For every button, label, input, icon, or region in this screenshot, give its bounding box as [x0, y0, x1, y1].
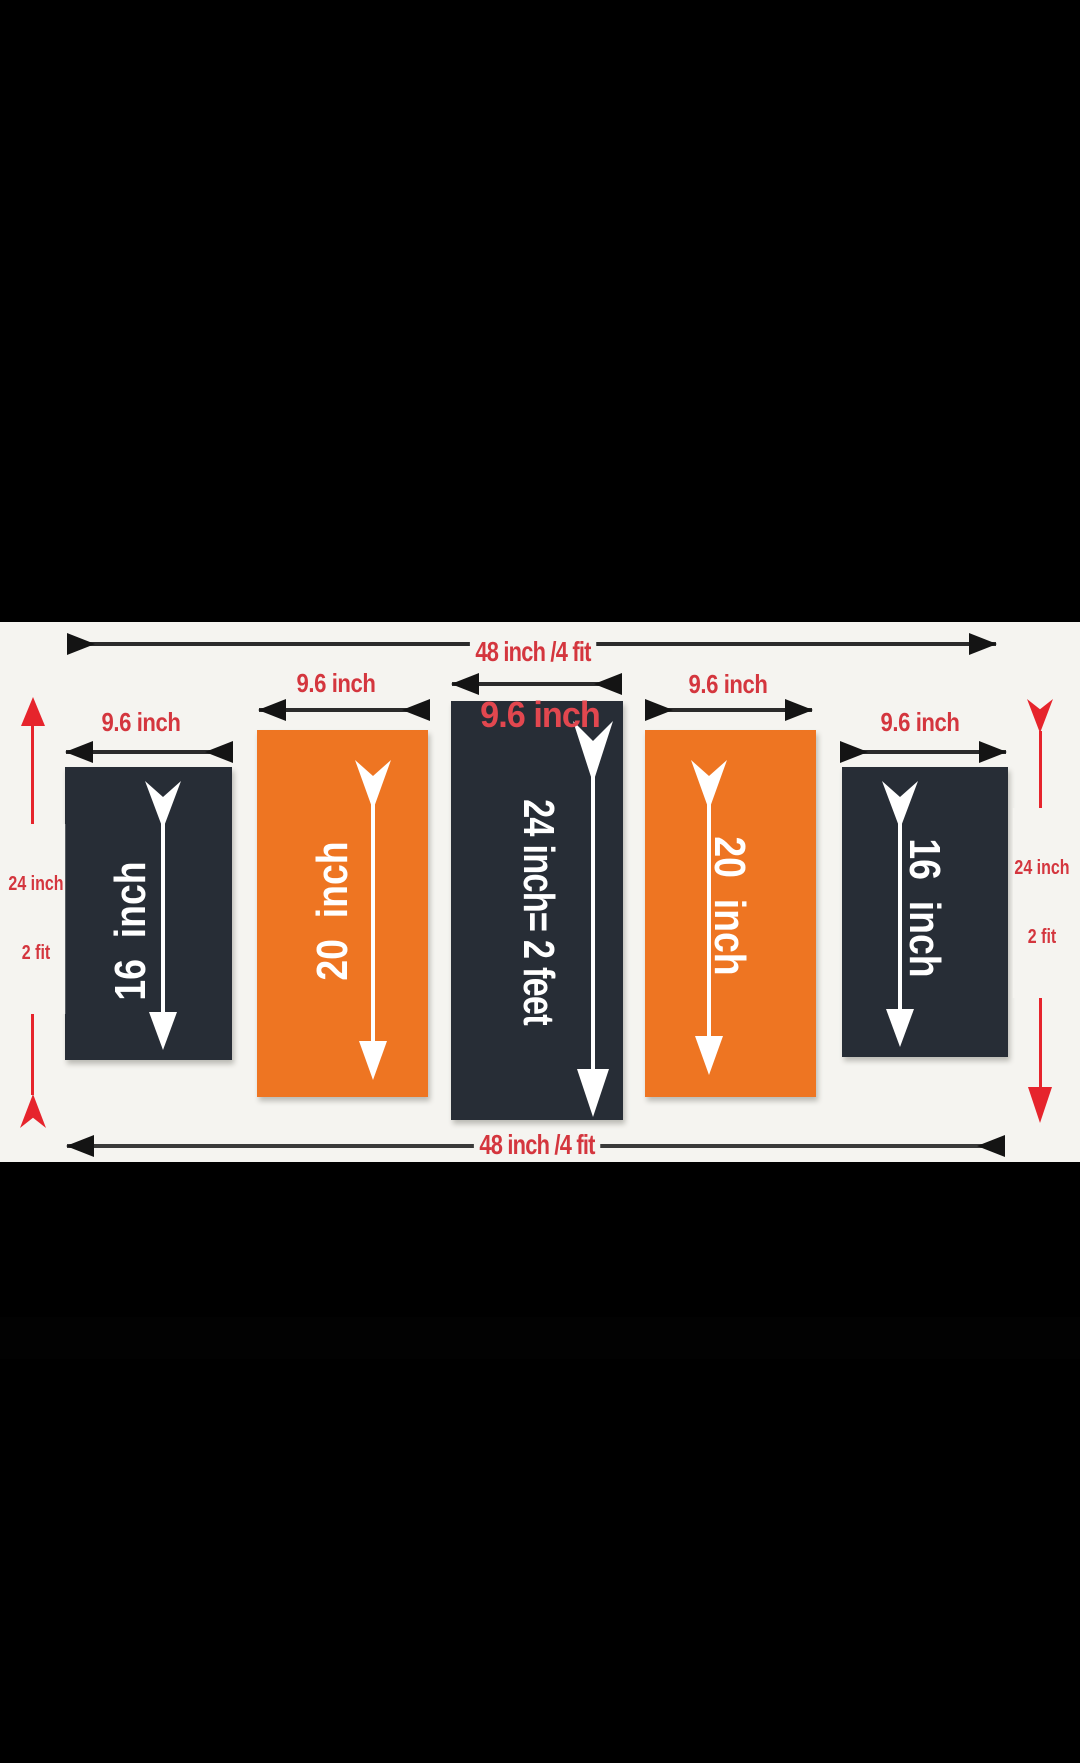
background-shade-strip [0, 1317, 1080, 1359]
panel-2-width-arrow [258, 699, 430, 721]
panel-5-height-label: 16 inch [902, 838, 946, 977]
panel-1-width-arrow [65, 741, 233, 763]
panel-2-height-label: 20 inch [311, 841, 355, 980]
left-height-label: 24 inch 2 fit [7, 824, 65, 1014]
arrowhead-left-icon [205, 741, 233, 763]
arrowhead-left-icon [258, 699, 286, 721]
red-arrowhead-down-icon [1028, 1087, 1052, 1123]
panel-1: 16 inch [65, 767, 232, 1060]
letterbox-bottom [0, 1162, 1080, 1763]
arrowhead-right-icon [645, 699, 673, 721]
panel-3: 24 inch= 2 feet [451, 701, 623, 1120]
panel-3-height-label: 24 inch= 2 feet [516, 799, 560, 1025]
right-height-label: 24 inch 2 fit [1013, 808, 1071, 998]
screenshot-root: 48 inch /4 fit 48 inch /4 fit 9.6 inch 9… [0, 0, 1080, 1763]
panel-5-width-arrow [840, 741, 1007, 763]
arrowhead-left-icon [66, 1135, 94, 1157]
center-width-overlay-label: 9.6 inch [480, 697, 600, 733]
red-arrowhead-up-icon [21, 697, 45, 726]
arrowhead-left-icon [402, 699, 430, 721]
panel-2-width-label: 9.6 inch [291, 668, 382, 698]
left-height-label-line2: 2 fit [8, 942, 63, 965]
panel-1-width-label: 9.6 inch [96, 707, 187, 737]
panel-2: 20 inch [257, 730, 428, 1097]
arrowhead-left-icon [977, 1135, 1005, 1157]
arrowhead-left-icon [594, 673, 622, 695]
arrowhead-right-icon [840, 741, 868, 763]
right-height-label-line1: 24 inch [1014, 857, 1069, 880]
arrowhead-left-icon [65, 741, 93, 763]
panel-4-height-label: 20 inch [707, 836, 751, 975]
arrowhead-right-icon [969, 633, 997, 655]
arrowhead-left-icon [451, 673, 479, 695]
panel-5-width-label: 9.6 inch [875, 707, 966, 737]
panel-4: 20 inch [645, 730, 816, 1097]
panel-4-width-label: 9.6 inch [683, 669, 774, 699]
panel-3-width-arrow [451, 673, 622, 695]
arrowhead-right-icon [67, 633, 95, 655]
bottom-width-label: 48 inch /4 fit [474, 1129, 600, 1161]
arrowhead-right-icon [979, 741, 1007, 763]
panel-4-width-arrow [645, 699, 813, 721]
right-height-label-line2: 2 fit [1014, 926, 1069, 949]
top-width-label: 48 inch /4 fit [470, 636, 596, 668]
panel-5: 16 inch [842, 767, 1008, 1057]
letterbox-top [0, 0, 1080, 622]
left-height-label-line1: 24 inch [8, 873, 63, 896]
panel-1-height-label: 16 inch [109, 861, 153, 1000]
arrowhead-right-icon [785, 699, 813, 721]
